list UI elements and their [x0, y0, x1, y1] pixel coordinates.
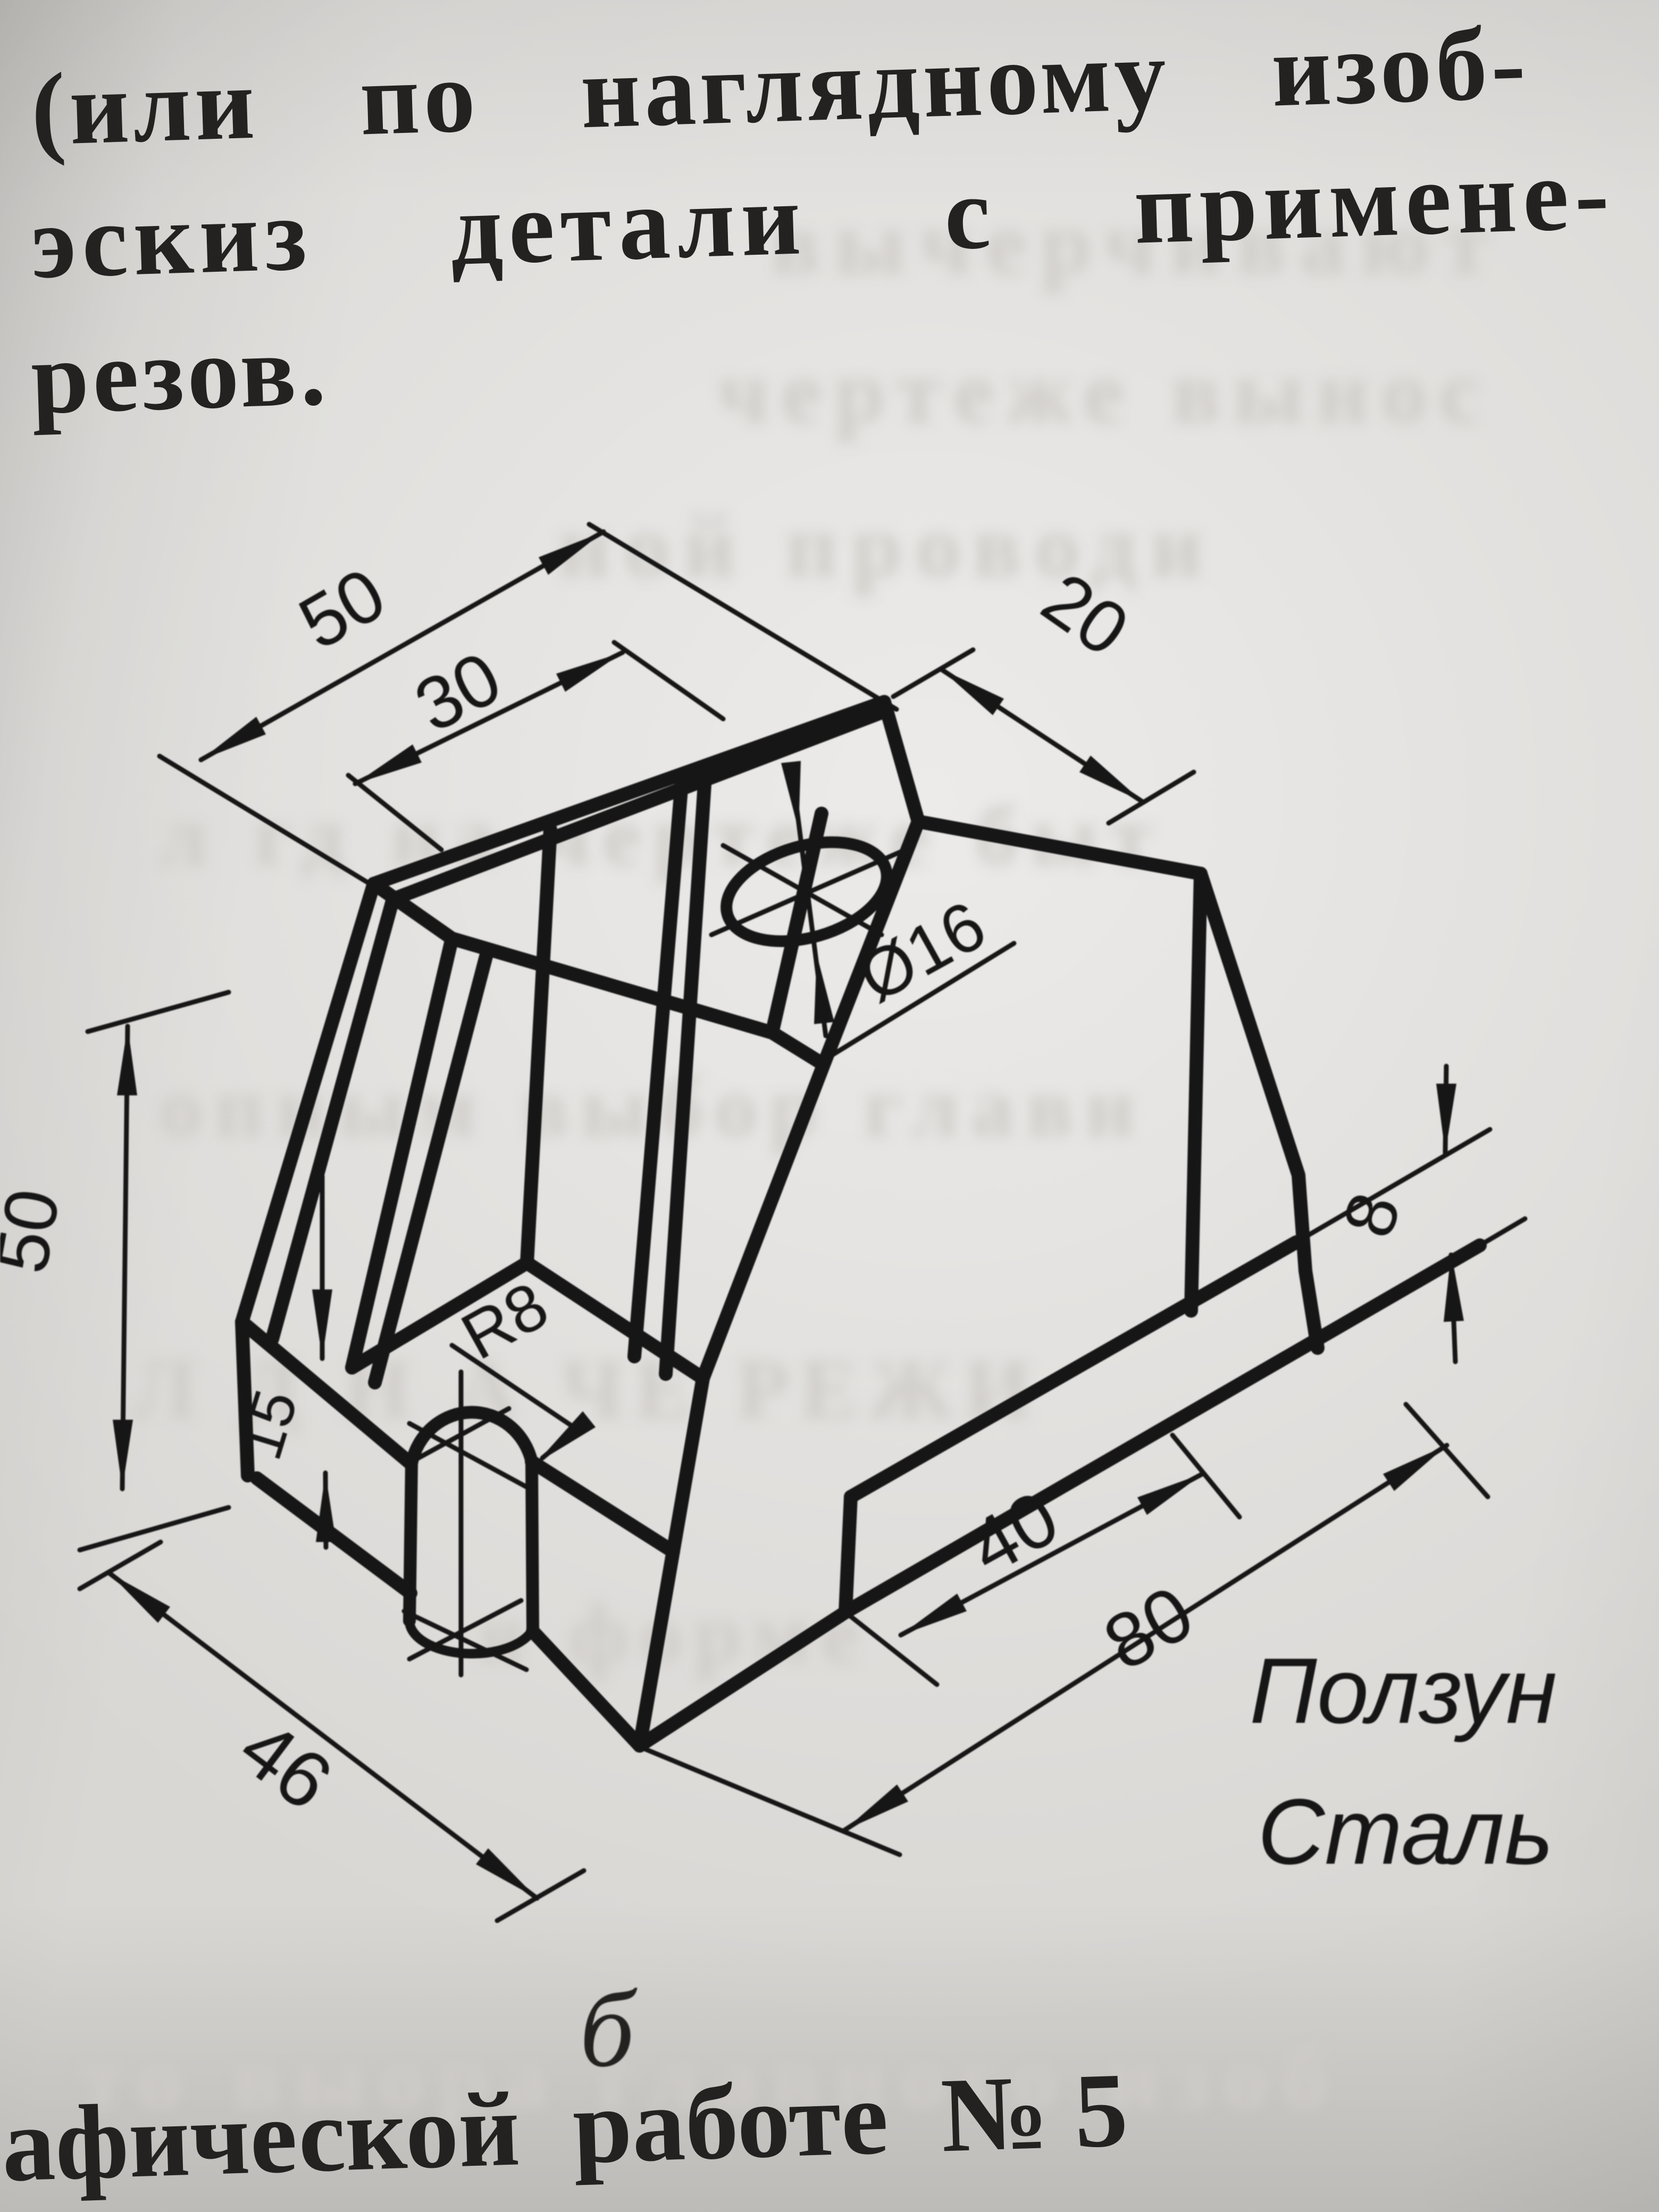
svg-text:Ползун: Ползун	[1250, 1639, 1557, 1743]
svg-text:80: 80	[1090, 1569, 1208, 1687]
svg-text:50: 50	[0, 1183, 76, 1279]
svg-text:R8: R8	[450, 1268, 560, 1374]
svg-text:8: 8	[1327, 1184, 1416, 1246]
svg-text:б: б	[580, 1969, 638, 2090]
svg-text:20: 20	[1028, 556, 1144, 672]
svg-text:30: 30	[401, 635, 514, 748]
svg-text:Сталь: Сталь	[1258, 1780, 1553, 1884]
svg-text:50: 50	[286, 551, 399, 665]
svg-text:46: 46	[224, 1702, 348, 1827]
